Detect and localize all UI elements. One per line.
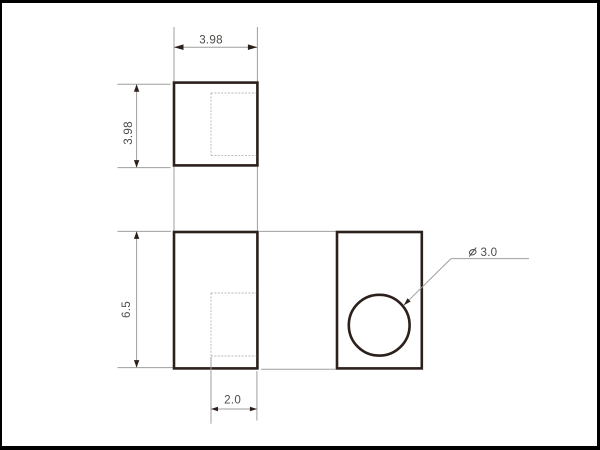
svg-text:3.98: 3.98 [122,121,135,145]
svg-text:6.5: 6.5 [120,301,133,318]
svg-text:3.98: 3.98 [199,33,223,46]
svg-text:3.0: 3.0 [481,246,498,259]
svg-text:2.0: 2.0 [224,393,241,406]
